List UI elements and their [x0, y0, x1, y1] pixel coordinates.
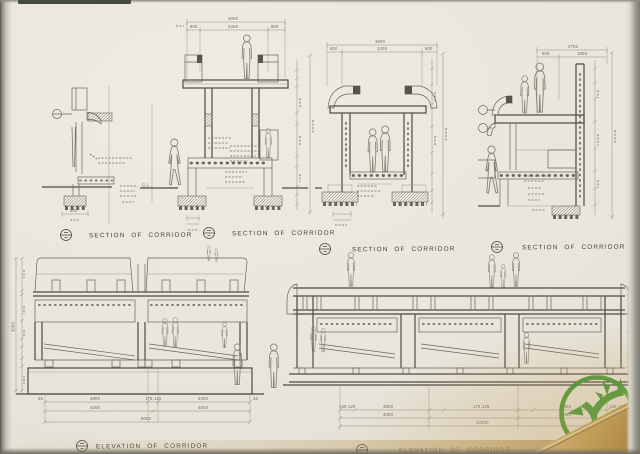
- human-figure: [265, 129, 271, 158]
- caption-section-2: SECTION OF CORRIDOR: [202, 226, 335, 240]
- dimension-label: 2400: [228, 24, 239, 29]
- dimension-label: 1800: [577, 51, 588, 56]
- dimension-label: 900: [542, 51, 550, 56]
- dimension-label: 600: [330, 46, 338, 51]
- human-figure: [215, 248, 218, 261]
- human-figure: [488, 255, 495, 287]
- human-figure: [242, 35, 251, 79]
- caption-elevation-2: ELEVATION OF CORRIDOR: [355, 443, 511, 454]
- drawing-caption: ELEVATION OF CORRIDOR: [399, 446, 511, 454]
- dimension-label: 4000: [383, 412, 394, 417]
- dimension-label: 8000: [141, 416, 152, 421]
- stag-tree-emblem-logo: [557, 372, 637, 452]
- drawing-caption: SECTION OF CORRIDOR: [89, 231, 193, 239]
- human-figure: [222, 323, 227, 348]
- detail-marker-icon: [355, 443, 369, 454]
- drawing-caption: SECTION OF CORRIDOR: [522, 243, 626, 251]
- dimension-label: 3800: [383, 404, 394, 409]
- dimension-label: 800: [190, 24, 198, 29]
- scanned-drawing-sheet: 600 4000 800 2400 800 G.L.: [0, 0, 640, 454]
- dimension-label: 175,125: [473, 404, 490, 409]
- dimension-label: 3800: [90, 396, 101, 401]
- human-figure: [486, 146, 498, 193]
- drawing-caption: ELEVATION OF CORRIDOR: [96, 442, 208, 450]
- dimension-label: 2400: [377, 46, 388, 51]
- detail-marker-icon: [490, 240, 504, 254]
- ground-level-label: G.L.: [142, 183, 151, 188]
- section-drawing-2: 4000 800 2400 800 G.L.: [140, 10, 320, 236]
- human-figure: [347, 253, 354, 286]
- human-figure: [169, 139, 181, 185]
- caption-section-3: SECTION OF CORRIDOR: [318, 242, 455, 256]
- detail-marker-icon: [318, 242, 332, 256]
- dimension-label: 4000: [90, 405, 101, 410]
- dimension-label: 4000: [198, 405, 209, 410]
- drawing-caption: SECTION OF CORRIDOR: [352, 245, 456, 253]
- caption-elevation-1: ELEVATION OF CORRIDOR: [75, 439, 208, 453]
- dimension-label: 4000: [198, 396, 209, 401]
- section-drawing-4: 2700 900 1800: [478, 40, 628, 228]
- dimension-label: 45: [253, 396, 259, 401]
- human-figure: [501, 265, 506, 288]
- dimension-label: 3000: [11, 321, 16, 332]
- caption-section-4: SECTION OF CORRIDOR: [490, 240, 625, 254]
- binding-strip: [18, 0, 131, 4]
- human-figure: [368, 129, 377, 172]
- dimension-label: 150,125: [339, 404, 356, 409]
- dimension-label: 175,125: [145, 396, 162, 401]
- human-figure: [162, 319, 168, 347]
- dimension-label: 800: [271, 24, 279, 29]
- dimension-label: 600: [70, 208, 78, 213]
- human-figure: [207, 245, 210, 261]
- human-figure: [512, 253, 519, 286]
- dimension-label: 2700: [568, 44, 579, 49]
- human-figure: [380, 126, 390, 172]
- detail-marker-icon: [59, 228, 73, 242]
- dimension-label: 4000: [228, 16, 239, 21]
- drawing-caption: SECTION OF CORRIDOR: [232, 229, 336, 237]
- dimension-label: 45: [38, 396, 44, 401]
- elevation-drawing-1: 3000 45 3800 175,125 4000 45 4000 4000 8…: [12, 244, 284, 428]
- human-figure: [269, 344, 278, 388]
- caption-section-1: SECTION OF CORRIDOR: [59, 228, 192, 242]
- detail-marker-icon: [75, 439, 89, 453]
- detail-marker-icon: [202, 226, 216, 240]
- human-figure: [535, 63, 546, 112]
- human-figure: [521, 76, 529, 113]
- dimension-label: 3600: [375, 39, 386, 44]
- dimension-label: 12000: [476, 420, 489, 425]
- section-drawing-3: 3600 600 2400 600: [315, 28, 450, 228]
- dimension-label: 600: [425, 46, 433, 51]
